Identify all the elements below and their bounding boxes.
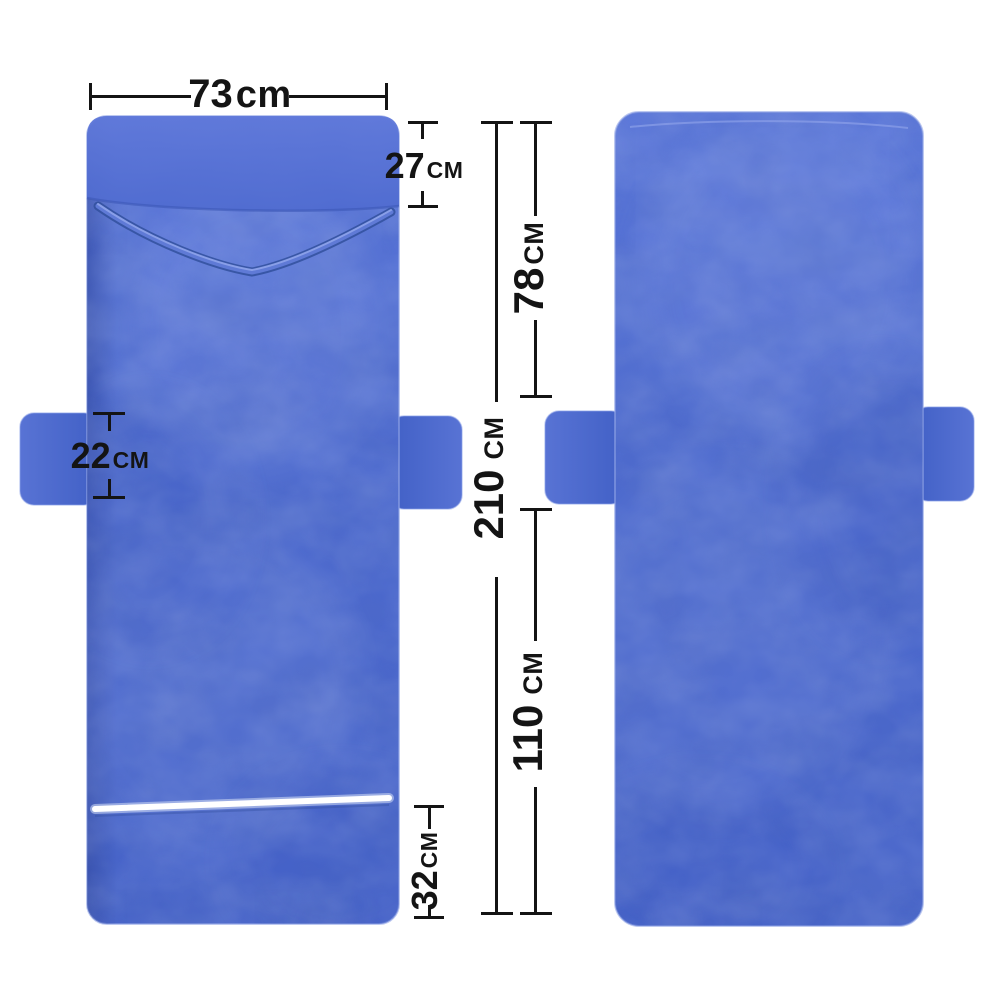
diagram-canvas: 73 cm 27 CM 78 CM 210 CM 110 CM 32 CM xyxy=(0,0,1001,1001)
back-side-pocket-left xyxy=(545,411,625,504)
dim-110-stem-bottom xyxy=(534,787,537,914)
dim-label-upper-section: 78 CM xyxy=(508,188,558,348)
dim-32-bottom-tick xyxy=(414,916,444,919)
dim-unit: CM xyxy=(113,449,150,472)
dim-label-side-pocket: 22 CM xyxy=(60,438,160,478)
dim-value: 110 xyxy=(507,705,549,773)
dim-78-stem-bottom xyxy=(534,320,537,397)
dim-110-bottom-tick xyxy=(520,912,552,915)
dim-210-bottom-tick xyxy=(481,912,513,915)
dim-unit: CM xyxy=(481,416,508,459)
dim-value: 22 xyxy=(71,438,111,474)
back-view-cover xyxy=(545,112,974,960)
dim-unit: CM xyxy=(520,652,547,695)
dim-73-line-right xyxy=(289,95,386,98)
dim-value: 27 xyxy=(385,148,425,184)
pillow-pocket-flap xyxy=(87,116,399,211)
dim-value: 73 xyxy=(188,74,233,114)
dim-27-bottom-tick xyxy=(408,205,438,208)
dim-unit: CM xyxy=(521,222,548,265)
dim-label-pillow-pocket: 27 CM xyxy=(384,148,464,188)
dim-unit: cm xyxy=(236,76,292,114)
dim-78-bottom-tick xyxy=(520,395,552,398)
front-view-cover xyxy=(20,116,462,950)
dim-210-stem-bottom xyxy=(495,577,498,914)
dim-unit: CM xyxy=(427,159,464,182)
dim-value: 78 xyxy=(508,268,550,315)
back-body-texture xyxy=(570,112,970,960)
dim-label-total-length: 210 CM xyxy=(468,368,520,588)
dim-22-stem-top xyxy=(108,412,111,431)
front-body-texture xyxy=(60,116,450,950)
dim-22-bottom-tick xyxy=(93,496,125,499)
dim-unit: CM xyxy=(418,832,441,869)
dim-73-line-left xyxy=(91,95,191,98)
front-side-pocket-right xyxy=(390,416,462,509)
dim-value: 210 xyxy=(468,469,510,539)
dim-210-stem-top xyxy=(495,121,498,402)
dim-27-stem-top xyxy=(421,121,424,139)
dim-value: 32 xyxy=(407,870,443,910)
dim-label-lower-section: 110 CM xyxy=(507,612,559,812)
dim-label-top-width: 73 cm xyxy=(190,74,290,116)
